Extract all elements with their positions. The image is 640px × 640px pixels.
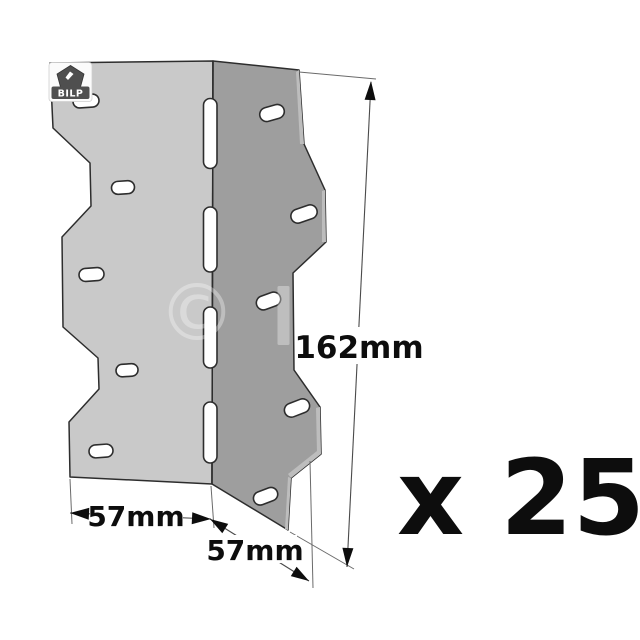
height-dimension-label: 162mm	[294, 330, 423, 366]
width-right-dimension-label: 57mm	[206, 534, 303, 567]
brand-badge-label: BILP	[58, 89, 84, 100]
arrowhead-height-bottom	[342, 548, 353, 567]
watermark-letter-fragment	[278, 286, 290, 345]
slot-fold-1	[204, 99, 218, 169]
slot-left-4	[116, 363, 139, 377]
dimension-line-height	[347, 82, 371, 567]
brand-badge: BILP	[49, 63, 92, 102]
slot-fold-4	[204, 402, 218, 463]
quantity-label: x 25	[397, 437, 640, 559]
width-left-dimension-label: 57mm	[87, 500, 184, 533]
arrowhead-width-left-end	[192, 512, 211, 524]
slot-fold-2	[204, 207, 218, 272]
slot-left-5	[89, 444, 114, 459]
slot-left-3	[79, 267, 105, 282]
extension-line-width-left	[70, 479, 72, 524]
extension-line-height-top	[299, 72, 376, 79]
watermark-copyright-symbol: ©	[158, 269, 236, 359]
extension-line-right-corner	[310, 461, 313, 588]
arrowhead-width-right-start	[210, 519, 228, 533]
slot-left-2	[111, 180, 135, 195]
angle-bracket-product-illustration: © 162mm 57mm 57mm x 25	[0, 0, 640, 640]
arrowhead-width-right-end	[291, 567, 309, 581]
arrowhead-height-top	[365, 81, 376, 100]
